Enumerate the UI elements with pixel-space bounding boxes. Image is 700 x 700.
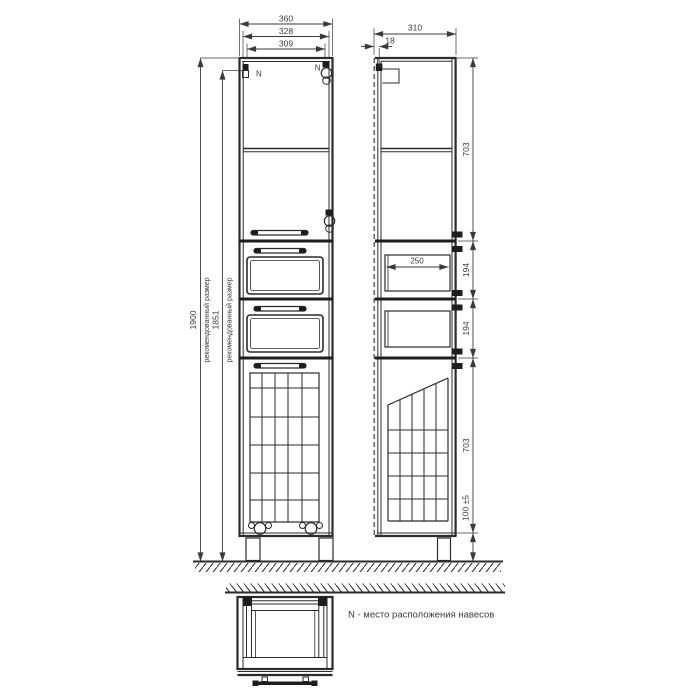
dim-lower-section: 703 xyxy=(461,438,471,452)
dims-side-depth: 310 18 xyxy=(361,23,456,68)
dim-overall-height: 1900 xyxy=(188,310,198,329)
drawer-handle-icon xyxy=(254,249,306,254)
door-handle-icon xyxy=(251,231,308,236)
front-view: N N xyxy=(239,58,335,561)
drawer-handle-icon xyxy=(254,307,306,312)
tilted-basket-side xyxy=(388,378,448,521)
dim-drawer-section-b: 194 xyxy=(461,321,471,335)
cabinet-technical-drawing: N N xyxy=(0,0,700,700)
dims-height-left: 1900 рекомендованный размер 1851 рекомен… xyxy=(188,58,243,562)
technical-drawing-page: N N xyxy=(0,0,700,700)
floor-line xyxy=(193,562,503,573)
hinge-label-right: N xyxy=(315,64,321,73)
wall-hatch xyxy=(226,584,505,593)
cabinet-leg xyxy=(319,538,333,561)
dim-depth: 310 xyxy=(408,23,422,33)
dim-door-thickness: 18 xyxy=(385,36,395,46)
dim-door-width: 328 xyxy=(279,26,293,36)
cabinet-leg xyxy=(246,538,260,561)
dim-upper-section: 703 xyxy=(461,142,471,156)
legend-note: N - место расположения навесов xyxy=(348,610,494,621)
dim-drawer-section-a: 194 xyxy=(461,263,471,277)
hinge-icon xyxy=(321,62,331,85)
cabinet-leg xyxy=(438,538,451,561)
dim-drawer-depth: 250 xyxy=(387,257,449,268)
hanger-plate-icon xyxy=(244,597,253,607)
floor-hatch xyxy=(195,563,501,572)
side-view: 250 xyxy=(374,58,462,561)
dims-front-width: 360 328 309 xyxy=(240,14,333,58)
laundry-basket-grid xyxy=(250,373,319,522)
dim-drawer-depth-value: 250 xyxy=(410,257,424,266)
drawer-front-panel xyxy=(247,315,323,352)
dim-body-height: 1851 xyxy=(211,310,221,329)
dim-inner-width: 309 xyxy=(279,39,293,49)
drawer-box-side xyxy=(385,311,450,347)
drawer-front-panel xyxy=(247,257,323,294)
door-handle-icon xyxy=(254,364,306,369)
dim-body-height-note: рекомендованный размер xyxy=(226,277,234,362)
plan-view xyxy=(225,584,505,687)
dim-overall-width: 360 xyxy=(279,14,293,24)
hinge-label-left: N xyxy=(256,70,262,79)
dim-plinth-height: 100 ±5 xyxy=(461,495,471,521)
plan-pedestal-icon xyxy=(253,677,318,686)
